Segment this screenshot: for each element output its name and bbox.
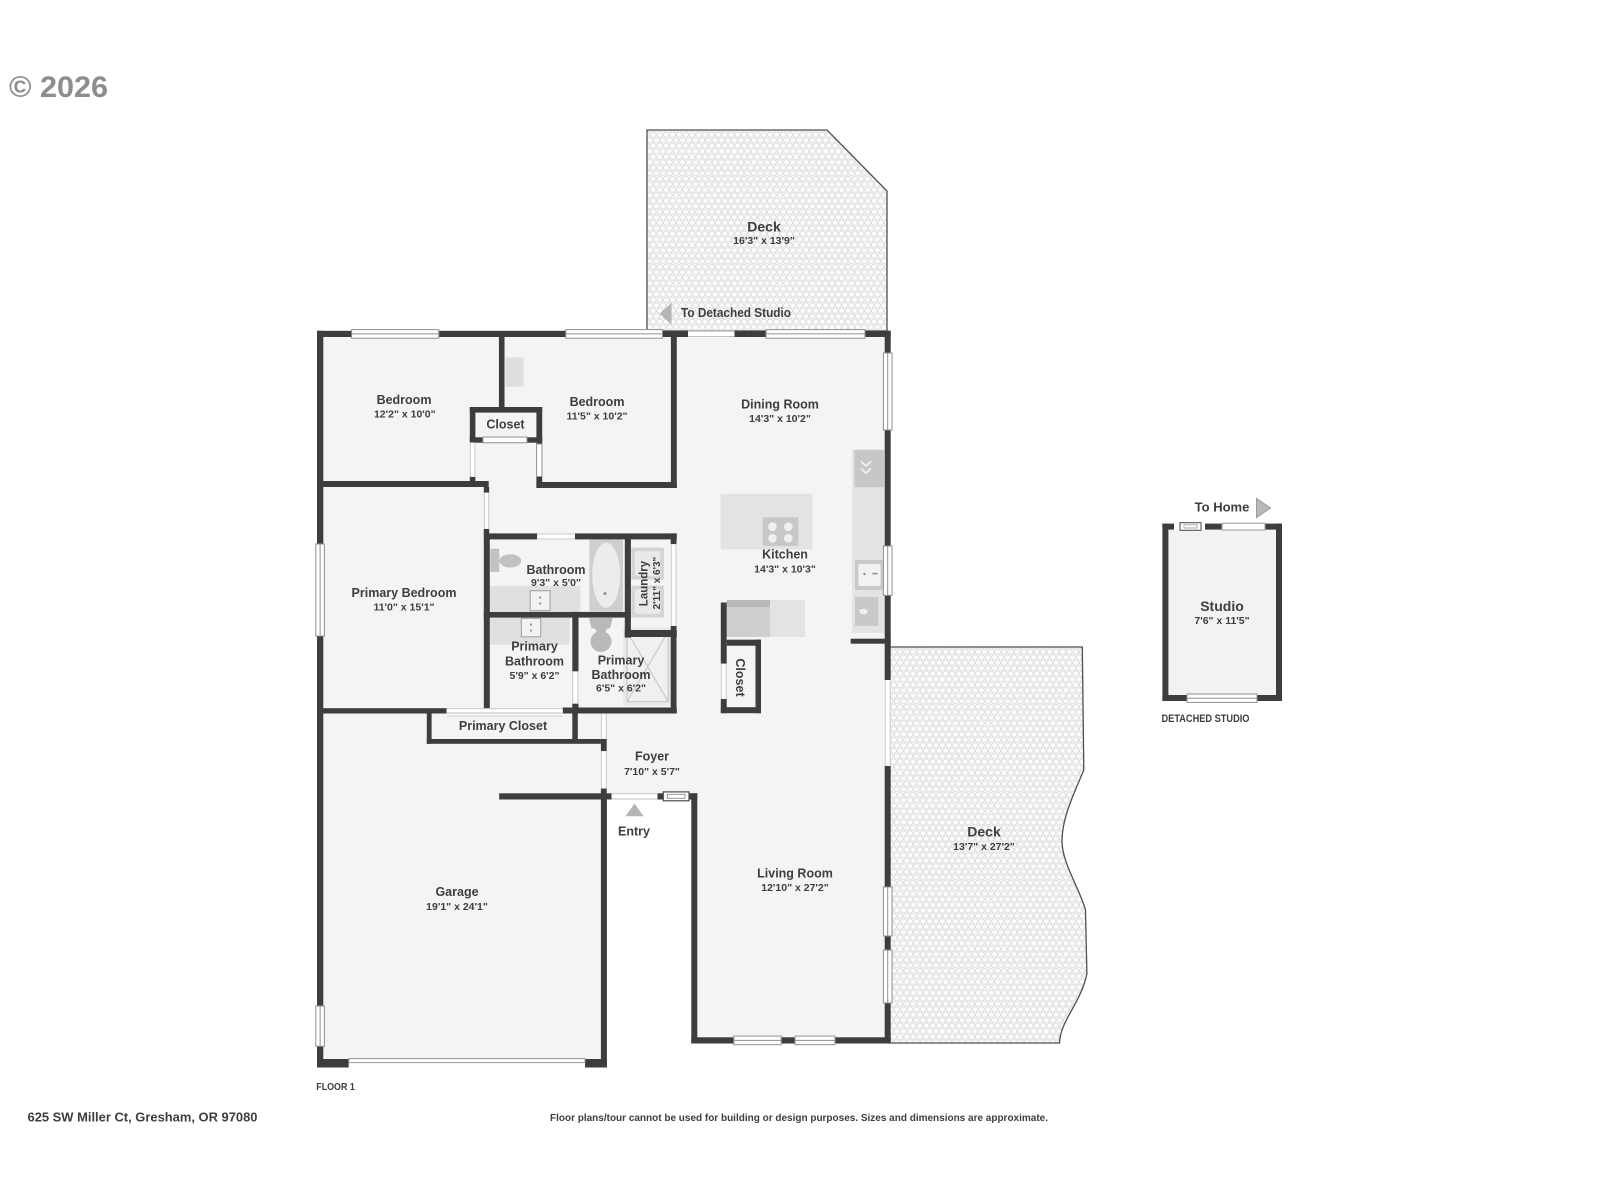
svg-text:7'6" x 11'5": 7'6" x 11'5" xyxy=(1194,615,1249,627)
svg-text:14'3" x 10'2": 14'3" x 10'2" xyxy=(749,413,811,425)
svg-text:Bathroom: Bathroom xyxy=(526,563,585,577)
svg-text:Bathroom: Bathroom xyxy=(505,655,564,669)
svg-text:16'3" x 13'9": 16'3" x 13'9" xyxy=(733,235,795,247)
svg-text:12'2" x 10'0": 12'2" x 10'0" xyxy=(374,409,436,421)
svg-text:625 SW Miller Ct, Gresham, OR: 625 SW Miller Ct, Gresham, OR 97080 xyxy=(28,1110,258,1125)
svg-text:DETACHED STUDIO: DETACHED STUDIO xyxy=(1162,713,1250,725)
svg-text:14'3" x 10'3": 14'3" x 10'3" xyxy=(754,564,816,576)
svg-text:Primary Bedroom: Primary Bedroom xyxy=(352,586,457,600)
svg-text:13'7" x 27'2": 13'7" x 27'2" xyxy=(953,841,1015,853)
svg-text:To Home: To Home xyxy=(1195,500,1250,515)
svg-text:Laundry: Laundry xyxy=(639,560,651,606)
svg-text:Bathroom: Bathroom xyxy=(591,668,650,682)
svg-text:9'3" x 5'0": 9'3" x 5'0" xyxy=(531,577,581,589)
svg-text:Kitchen: Kitchen xyxy=(762,548,808,562)
svg-text:Foyer: Foyer xyxy=(635,750,669,764)
svg-text:Deck: Deck xyxy=(967,824,1001,840)
svg-text:19'1" x 24'1": 19'1" x 24'1" xyxy=(426,901,488,913)
svg-text:Dining Room: Dining Room xyxy=(741,398,819,412)
svg-text:Primary: Primary xyxy=(598,654,645,668)
svg-text:Studio: Studio xyxy=(1200,598,1244,614)
svg-text:2'11" x 6'3": 2'11" x 6'3" xyxy=(652,556,663,609)
svg-text:7'10" x 5'7": 7'10" x 5'7" xyxy=(624,766,680,778)
svg-text:Primary: Primary xyxy=(511,640,558,654)
svg-text:5'9" x 6'2": 5'9" x 6'2" xyxy=(510,670,560,682)
svg-text:11'5" x 10'2": 11'5" x 10'2" xyxy=(566,411,627,423)
svg-text:© 2026: © 2026 xyxy=(9,71,108,104)
svg-text:FLOOR 1: FLOOR 1 xyxy=(316,1081,355,1093)
svg-text:12'10" x 27'2": 12'10" x 27'2" xyxy=(761,882,829,894)
svg-text:Living Room: Living Room xyxy=(757,867,833,881)
svg-text:Bedroom: Bedroom xyxy=(377,393,432,407)
svg-text:Entry: Entry xyxy=(618,825,650,839)
svg-text:Primary Closet: Primary Closet xyxy=(459,719,548,733)
svg-text:Deck: Deck xyxy=(747,219,781,235)
svg-text:Closet: Closet xyxy=(733,658,747,697)
svg-text:11'0" x 15'1": 11'0" x 15'1" xyxy=(373,602,434,614)
svg-text:6'5" x 6'2": 6'5" x 6'2" xyxy=(596,683,646,695)
svg-text:Closet: Closet xyxy=(486,418,525,432)
svg-text:Bedroom: Bedroom xyxy=(570,395,625,409)
svg-text:To Detached Studio: To Detached Studio xyxy=(681,306,791,320)
svg-text:Garage: Garage xyxy=(435,885,478,899)
svg-text:Floor plans/tour cannot be use: Floor plans/tour cannot be used for buil… xyxy=(550,1112,1048,1124)
